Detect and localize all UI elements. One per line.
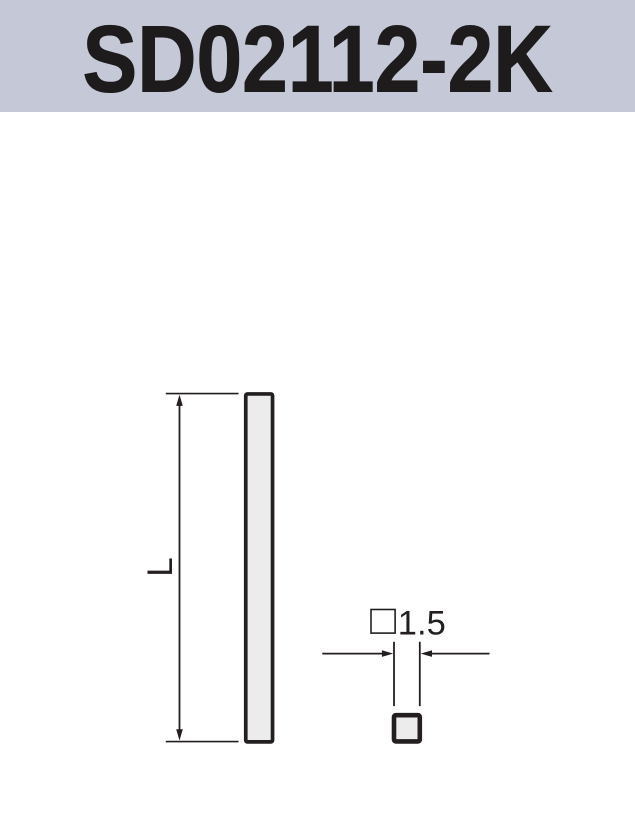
svg-text:L: L xyxy=(141,557,180,576)
svg-text:1.5: 1.5 xyxy=(398,605,446,643)
svg-text:SD02112-2K: SD02112-2K xyxy=(83,7,553,113)
